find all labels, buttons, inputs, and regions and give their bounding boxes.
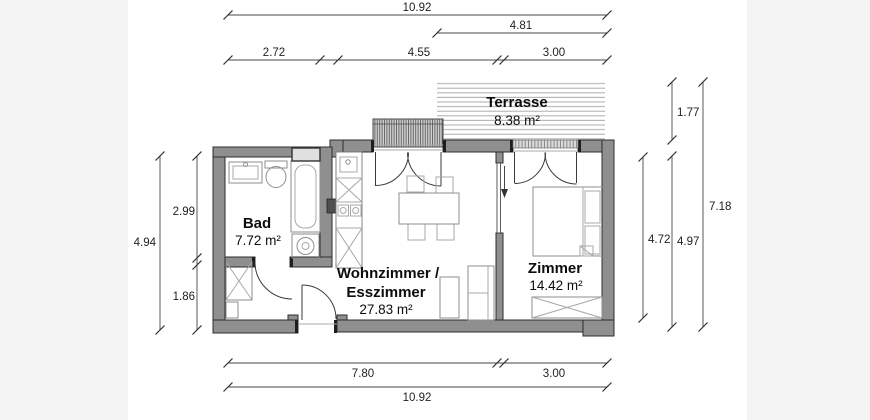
dim-top-seg2: 4.55: [408, 47, 430, 59]
wall-divider-lower: [496, 233, 503, 320]
dim-right-total: 7.18: [709, 201, 731, 213]
wall-bottom-left: [213, 320, 298, 333]
dim-left-total: 4.94: [134, 237, 157, 249]
floor-plan-page: Terrasse 8.38 m²: [0, 0, 870, 420]
dim-left-seg2: 1.86: [173, 291, 195, 303]
dim-top-total: 10.92: [403, 2, 432, 14]
dim-left-seg1: 2.99: [173, 206, 195, 218]
wohnzimmer-label-line2: Esszimmer: [346, 284, 425, 301]
dim-top-seg3: 3.00: [543, 47, 565, 59]
dim-right-inner: 4.97: [677, 236, 699, 248]
kitchen-unit: [336, 152, 362, 268]
dim-bottom-seg1: 7.80: [352, 368, 374, 380]
dim-bottom-total: 10.92: [403, 392, 432, 404]
terrace: Terrasse 8.38 m²: [437, 80, 605, 141]
shaft-box: [292, 148, 320, 161]
door-canopy: [373, 119, 443, 147]
wall-divider-stub: [496, 152, 503, 163]
dim-bottom-seg2: 3.00: [543, 368, 565, 380]
entrance-jamb-left: [288, 315, 298, 320]
wohnzimmer-area: 27.83 m²: [359, 302, 413, 317]
wall-top-living-right: [443, 140, 513, 152]
wall-left: [213, 147, 225, 333]
bad-label: Bad: [243, 215, 271, 232]
dim-right-terrace: 1.77: [677, 107, 699, 119]
wall-right: [602, 140, 614, 336]
floor-plan-drawing: Terrasse 8.38 m²: [0, 0, 870, 420]
entrance-jamb-right: [337, 315, 347, 320]
wall-bottom-corner: [583, 320, 614, 336]
terrace-area: 8.38 m²: [494, 113, 540, 128]
dim-top-partial: 4.81: [510, 20, 532, 32]
wall-top-living-left: [343, 140, 373, 152]
wall-bottom-right: [337, 320, 583, 332]
wohnzimmer-label-line1: Wohnzimmer /: [337, 265, 440, 282]
zimmer-area: 14.42 m²: [529, 278, 583, 293]
bad-area: 7.72 m²: [235, 233, 281, 248]
terrace-label: Terrasse: [486, 94, 547, 111]
dim-top-seg1: 2.72: [263, 47, 285, 59]
zimmer-label: Zimmer: [528, 260, 582, 277]
dim-right-room: 4.72: [648, 234, 670, 246]
sliding-door-panel: [497, 163, 501, 233]
